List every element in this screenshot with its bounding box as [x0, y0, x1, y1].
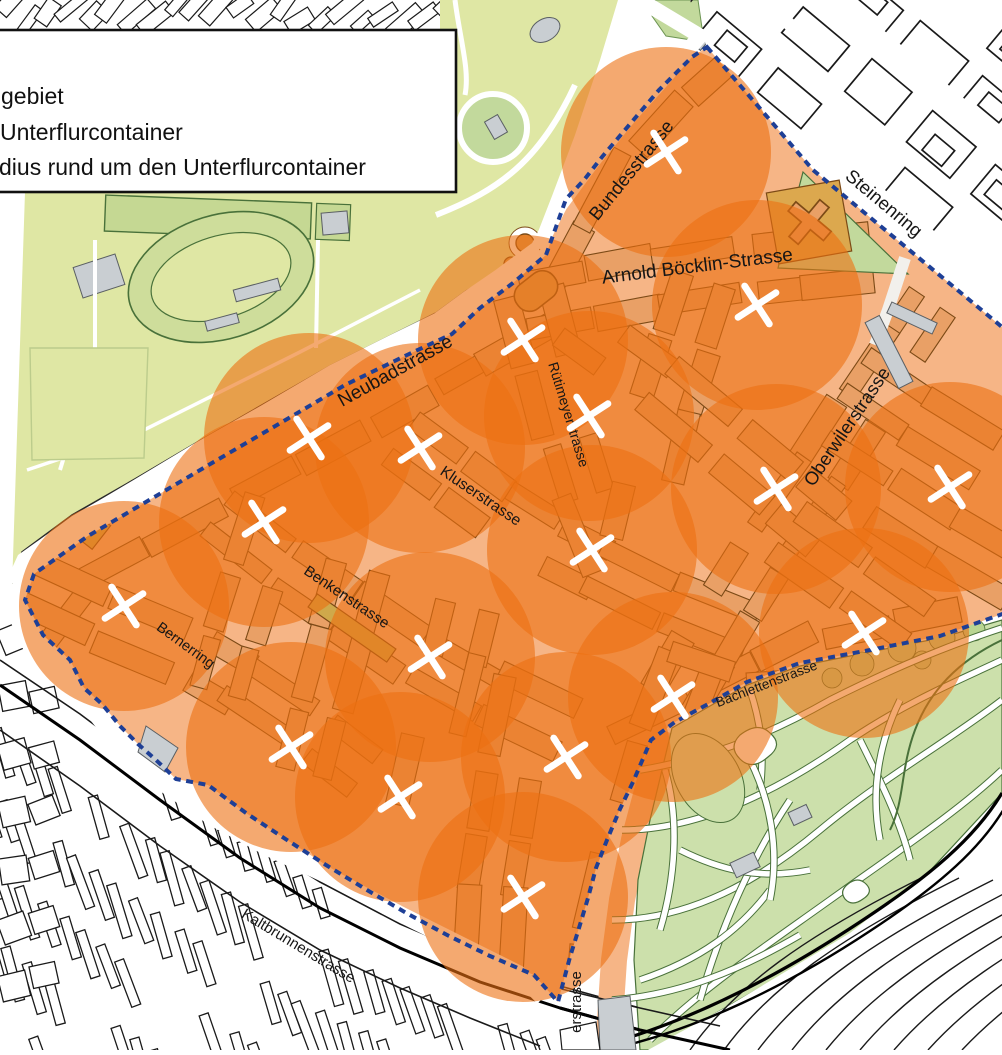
svg-text:dius rund um den Unterflurcont: dius rund um den Unterflurcontainer	[0, 154, 366, 180]
svg-text:Unterflurcontainer: Unterflurcontainer	[0, 119, 183, 145]
svg-text:gebiet: gebiet	[1, 83, 64, 109]
svg-text:erstrasse: erstrasse	[568, 971, 585, 1033]
